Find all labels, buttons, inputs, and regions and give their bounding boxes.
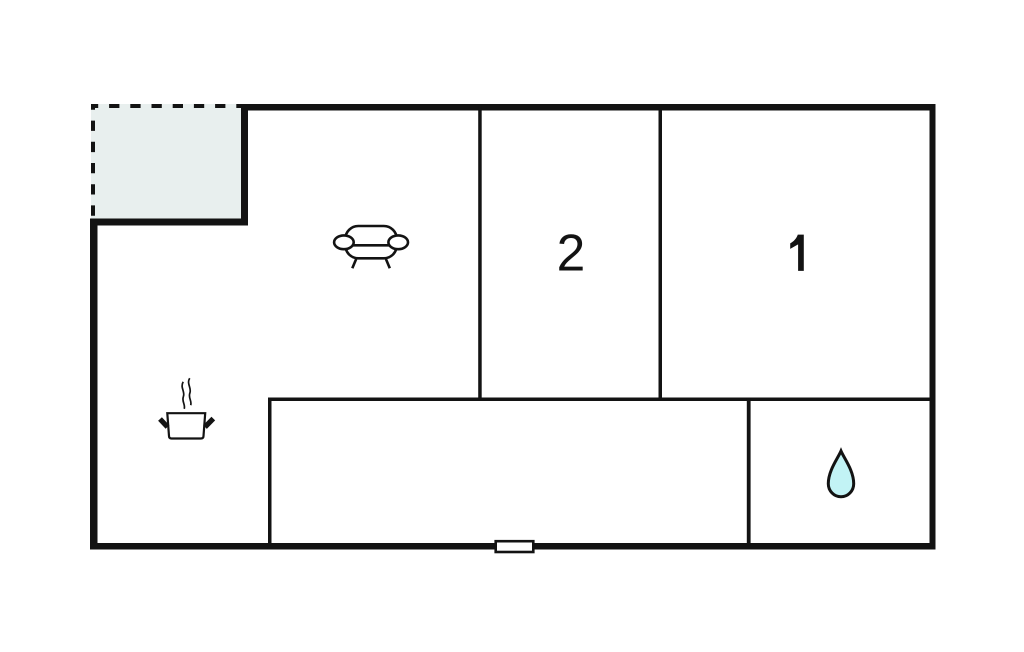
svg-text:2: 2 [557, 224, 586, 282]
